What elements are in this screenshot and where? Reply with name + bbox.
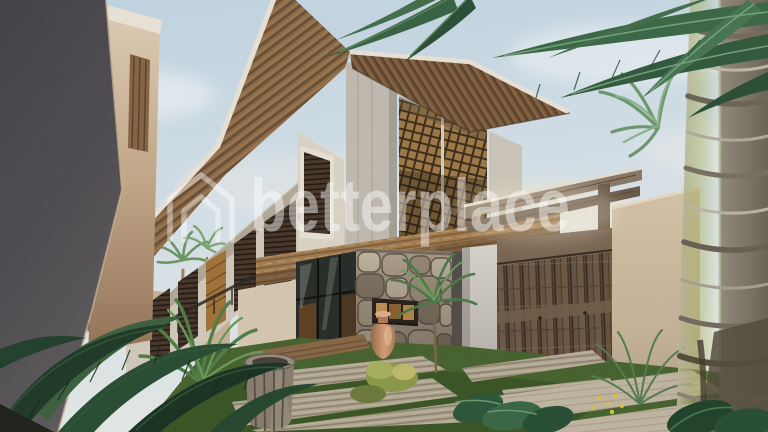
watermark-text: betterplace [250, 164, 570, 247]
villa-render-image: betterplace [0, 0, 768, 432]
scene-canvas: betterplace [0, 0, 768, 432]
